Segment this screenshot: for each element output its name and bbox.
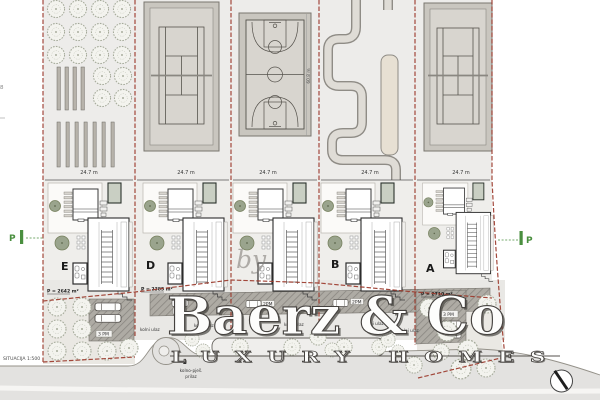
plot-width-a: 24.7 m: [452, 170, 470, 176]
tennis-court-a: [424, 3, 492, 151]
edge-fragment: 8: [0, 85, 4, 91]
watermark-brand: Baerz & Co: [167, 286, 505, 347]
site-plan-page: 60.8 m 24.7 m 24.7 m 24.7 m 24.7 m 24.7 …: [0, 0, 600, 400]
plot-label-d: D: [146, 259, 155, 272]
plot-width-d: 24.7 m: [177, 170, 195, 176]
parking-marker-right: P: [526, 236, 533, 246]
plot-width-b: 24.7 m: [361, 170, 379, 176]
plot-label-b: B: [331, 258, 339, 271]
site-plan: 60.8 m 24.7 m 24.7 m 24.7 m 24.7 m 24.7 …: [0, 0, 600, 400]
plot-width-c: 24.7 m: [259, 170, 277, 176]
driveway-label-1: kolni ulaz: [140, 327, 161, 332]
plot-label-e: E: [61, 260, 69, 273]
compass: [551, 370, 573, 392]
plot-area-e: P = 2642 m²: [47, 289, 79, 295]
scale-label: SITUACIJA 1:500: [3, 356, 40, 362]
access-label-1: kolno-pješ.: [180, 368, 203, 373]
court-depth-dim: 60.8 m: [306, 68, 312, 83]
basketball-court: 60.8 m: [239, 13, 312, 136]
car-icon: [95, 315, 121, 323]
tennis-court-d: [144, 2, 219, 151]
plot-label-a: A: [426, 262, 435, 275]
access-label-2: prilaz: [185, 374, 197, 379]
track-strip: [381, 55, 398, 155]
parking-label-e: 3 PM: [98, 332, 109, 338]
watermark-tagline: LUXURY HOMES: [171, 348, 561, 366]
car-icon: [95, 303, 121, 311]
parking-marker-left: P: [9, 234, 16, 244]
plot-width-e: 24.7 m: [80, 170, 98, 176]
watermark-by: by: [236, 245, 267, 274]
